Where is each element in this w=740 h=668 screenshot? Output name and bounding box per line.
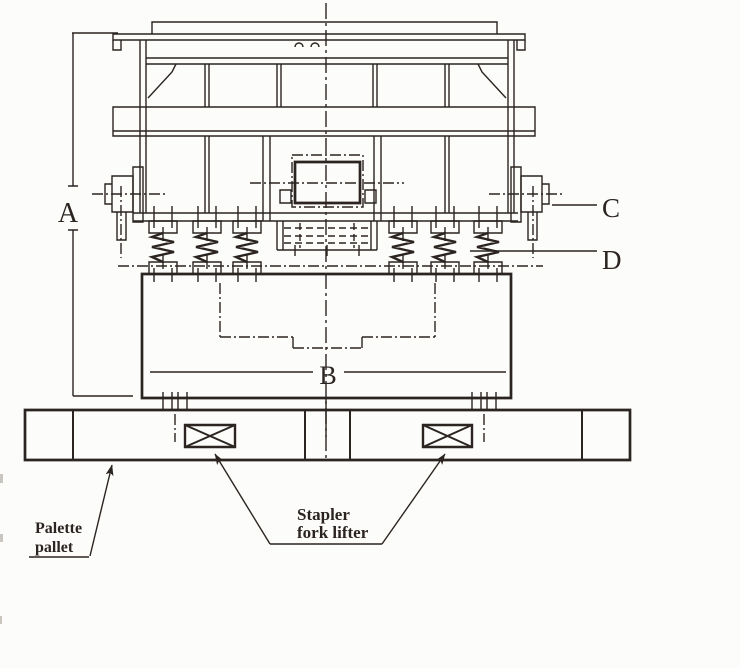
fork-pocket-left [185, 425, 235, 447]
fork-lifter-arrow-right [382, 454, 445, 544]
scanned-technical-drawing: A [0, 0, 740, 668]
machine-on-pallet-drawing: A [0, 0, 740, 668]
pallet-annotation: Palette pallet [29, 465, 112, 557]
top-flange [113, 34, 525, 50]
lower-exciter-box [277, 221, 377, 256]
exciter-housing [250, 136, 404, 221]
scan-artifact [0, 474, 3, 624]
pallet-dividers [73, 410, 582, 460]
fork-lifter-annotation: Stapler fork lifter [215, 454, 445, 544]
pallet-outline [25, 410, 630, 460]
pallet [25, 410, 630, 460]
upper-rail [146, 58, 508, 64]
upper-ribs [205, 64, 449, 107]
fork-pocket-cross-icon [423, 425, 472, 447]
pallet-label-line1: Palette [35, 520, 82, 537]
base-hidden-recess [220, 283, 435, 348]
dim-label-c: C [602, 193, 620, 223]
dim-label-a: A [58, 198, 79, 229]
lid-outline [152, 22, 497, 34]
feet-axes [175, 414, 484, 442]
housing-walls [263, 136, 381, 221]
pallet-arrow [90, 465, 112, 556]
hidden-detail-dashes [284, 223, 370, 248]
fork-lifter-label-line2: fork lifter [297, 523, 369, 542]
dim-label-d: D [602, 245, 622, 275]
middle-band [113, 107, 535, 136]
corner-gusset-left [148, 64, 176, 98]
fork-pocket-cross-icon [185, 425, 235, 447]
callout-c: C [552, 193, 620, 223]
machine-body [113, 40, 535, 228]
fork-lifter-label-line1: Stapler [297, 505, 350, 524]
flange-plate [113, 34, 525, 40]
side-walls [140, 40, 514, 213]
fork-pocket-right [423, 425, 472, 447]
lifting-hooks-icon [295, 43, 319, 47]
lower-ribs [205, 136, 449, 213]
dim-label-b: B [319, 361, 336, 390]
feet-lines [163, 392, 496, 410]
shaft-axes [489, 186, 562, 258]
dimension-a: A [58, 33, 133, 396]
corner-gusset-right [478, 64, 506, 98]
fork-lifter-arrow-left [215, 454, 270, 544]
pallet-label-line2: pallet [35, 539, 74, 556]
